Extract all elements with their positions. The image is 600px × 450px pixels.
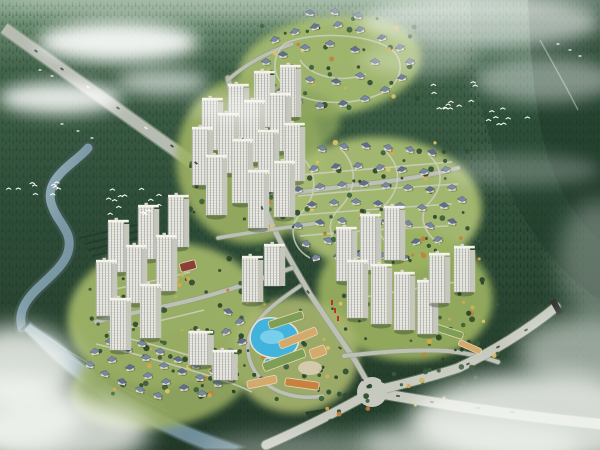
tower-penthouse — [115, 218, 118, 220]
tower-face — [274, 163, 290, 217]
autumn-tree — [492, 353, 497, 358]
tower-roof — [274, 161, 295, 164]
tower-side — [387, 268, 393, 324]
tower-building — [347, 258, 368, 323]
tree — [352, 179, 355, 182]
autumn-tree — [470, 305, 474, 309]
tree — [247, 349, 250, 352]
tower-face — [242, 258, 258, 302]
distant-building — [579, 55, 582, 57]
tree — [381, 378, 387, 384]
tower-roof — [360, 214, 381, 217]
tree — [415, 96, 420, 101]
tree — [275, 397, 279, 401]
tower-roof — [96, 260, 117, 263]
tower-building — [242, 254, 263, 307]
red-banner — [334, 308, 336, 313]
tree — [168, 354, 173, 359]
tower-side — [300, 127, 306, 181]
tree — [362, 48, 365, 51]
tower-penthouse — [354, 258, 357, 260]
tower-building — [454, 244, 475, 297]
autumn-tree — [270, 225, 274, 229]
tower-building — [384, 204, 405, 265]
tree — [337, 392, 342, 397]
tower-side — [470, 250, 476, 292]
autumn-tree — [462, 301, 465, 304]
autumn-tree — [177, 283, 182, 288]
autumn-tree — [337, 412, 342, 417]
tower-side — [222, 159, 228, 215]
autumn-tree — [427, 339, 432, 344]
autumn-tree — [263, 303, 265, 305]
tower-penthouse — [436, 251, 439, 253]
tower-penthouse — [271, 242, 274, 244]
tree — [469, 316, 475, 322]
tower-side — [172, 239, 178, 291]
autumn-tree — [181, 329, 184, 332]
tower-building — [264, 242, 285, 291]
tower-face — [156, 237, 172, 291]
autumn-tree — [339, 302, 343, 306]
tower-roof — [156, 235, 177, 238]
tower-roof — [228, 84, 249, 87]
tree — [329, 215, 333, 219]
tower-face — [429, 255, 445, 303]
tree — [326, 66, 330, 70]
tree — [438, 316, 442, 320]
distant-building — [557, 43, 560, 45]
tower-side — [264, 174, 270, 228]
tree — [442, 150, 446, 154]
tower-building — [429, 251, 450, 308]
tree — [342, 393, 348, 399]
tree — [367, 80, 372, 85]
tree — [232, 390, 236, 394]
autumn-tree — [323, 232, 327, 236]
tower-roof — [394, 272, 415, 275]
masterplan-svg — [0, 0, 600, 450]
cloud — [38, 22, 198, 62]
tree — [428, 166, 434, 172]
tower-penthouse — [255, 168, 258, 170]
tree — [284, 32, 287, 35]
autumn-tree — [422, 353, 427, 358]
tower-penthouse — [175, 193, 178, 195]
tower-penthouse — [401, 270, 404, 272]
tree — [105, 334, 109, 338]
distant-building — [39, 69, 42, 71]
tree — [381, 174, 386, 179]
tower-roof — [213, 350, 238, 353]
autumn-tree — [174, 295, 177, 298]
tower-roof — [232, 139, 253, 142]
distant-building — [91, 137, 94, 139]
tree — [418, 82, 423, 87]
autumn-tree — [344, 87, 347, 90]
tree — [363, 393, 369, 399]
autumn-tree — [186, 277, 190, 281]
cloud — [116, 69, 208, 95]
tree — [226, 256, 232, 262]
autumn-tree — [421, 252, 424, 255]
autumn-tree — [407, 384, 411, 388]
tree — [201, 384, 204, 387]
tree — [400, 383, 403, 386]
tower-side — [184, 199, 190, 247]
tower-side — [296, 69, 302, 117]
tower-side — [410, 276, 416, 330]
tower-roof — [110, 298, 131, 301]
tree — [460, 347, 464, 351]
tree — [461, 323, 466, 328]
tree — [319, 396, 324, 401]
tree — [343, 369, 349, 375]
tower-penthouse — [117, 296, 120, 298]
tree — [465, 149, 470, 154]
tree — [344, 327, 348, 331]
tree — [410, 339, 413, 342]
autumn-tree — [296, 43, 300, 47]
tower-roof — [258, 130, 279, 133]
distant-building — [569, 49, 572, 51]
tree — [218, 269, 221, 272]
tree — [204, 290, 208, 294]
tree — [193, 211, 196, 214]
tower-roof — [254, 71, 275, 74]
tower-penthouse — [291, 121, 294, 123]
tower-roof — [126, 245, 147, 248]
distant-building — [77, 130, 80, 132]
tree — [462, 211, 465, 214]
tower-roof — [192, 127, 213, 130]
tower-side — [290, 165, 296, 217]
tower-face — [206, 157, 222, 215]
autumn-tree — [386, 167, 391, 172]
tower-penthouse — [239, 137, 242, 139]
tower-roof — [189, 331, 214, 334]
cloud — [190, 96, 270, 120]
tree — [401, 177, 404, 180]
tree — [199, 199, 205, 205]
tower-face — [110, 300, 126, 350]
autumn-tree — [322, 338, 325, 341]
tree — [239, 333, 245, 339]
tower-face — [454, 248, 470, 292]
tower-side — [280, 248, 286, 286]
tree — [122, 277, 125, 280]
tree — [454, 349, 457, 352]
tower-roof — [264, 244, 285, 247]
tower-roof — [429, 253, 450, 256]
autumn-tree — [325, 374, 329, 378]
tree — [481, 281, 484, 284]
plaza — [298, 361, 322, 375]
tower-roof — [454, 246, 475, 249]
tree — [366, 399, 370, 403]
tree — [306, 251, 310, 255]
tower-face — [394, 274, 410, 330]
tree — [326, 389, 331, 394]
distant-building — [61, 123, 64, 125]
autumn-tree — [419, 378, 425, 384]
tower-face — [232, 141, 248, 203]
tower-face — [347, 262, 363, 318]
tower-side — [156, 288, 162, 338]
tree — [162, 341, 167, 346]
tower-roof — [280, 65, 301, 68]
tower-penthouse — [199, 125, 202, 127]
tree — [132, 328, 135, 331]
tree — [194, 387, 199, 392]
tower-penthouse — [367, 212, 370, 214]
tree — [348, 410, 351, 413]
autumn-tree — [478, 257, 481, 260]
tower-roof — [206, 155, 227, 158]
autumn-tree — [165, 389, 170, 394]
tree — [252, 373, 256, 377]
tree — [459, 364, 465, 370]
tower-building — [274, 159, 295, 222]
tree — [111, 392, 115, 396]
tower-penthouse — [197, 329, 200, 331]
tower-roof — [138, 205, 159, 208]
tower-side — [231, 354, 238, 380]
tree — [90, 316, 94, 320]
tree — [255, 246, 261, 252]
tower-penthouse — [133, 243, 136, 245]
tower-penthouse — [163, 233, 166, 235]
tree — [416, 148, 422, 154]
tree — [243, 364, 246, 367]
autumn-tree — [459, 236, 463, 240]
tower-roof — [371, 264, 392, 267]
tower-penthouse — [378, 262, 381, 264]
tree — [160, 307, 166, 313]
tower-penthouse — [261, 69, 264, 71]
tower-building — [394, 270, 415, 335]
tower-roof — [168, 195, 189, 198]
red-banner — [331, 300, 333, 305]
tower-roof — [347, 260, 368, 263]
tower-roof — [248, 170, 269, 173]
tree — [331, 307, 334, 310]
tower-penthouse — [147, 282, 150, 284]
tree — [379, 208, 383, 212]
tower-penthouse — [145, 203, 148, 205]
tower-face — [248, 172, 264, 228]
tree — [243, 217, 246, 220]
autumn-tree — [113, 388, 116, 391]
tree — [478, 240, 481, 243]
autumn-tree — [448, 318, 451, 321]
tree — [182, 356, 188, 362]
tower-roof — [242, 256, 263, 259]
tree — [444, 177, 447, 180]
tower-building — [206, 153, 227, 220]
tree — [447, 358, 450, 361]
tower-face — [126, 247, 142, 303]
autumn-tree — [482, 320, 485, 323]
red-banner — [337, 316, 339, 321]
tower-face — [140, 286, 156, 338]
tower-penthouse — [287, 63, 290, 65]
tower-roof — [108, 220, 129, 223]
tree — [88, 288, 91, 291]
tower-penthouse — [265, 128, 268, 130]
tower-face — [384, 208, 400, 260]
tree — [423, 369, 428, 374]
autumn-tree — [366, 406, 371, 411]
tree — [360, 209, 364, 213]
tower-penthouse — [235, 82, 238, 84]
tree — [189, 279, 195, 285]
autumn-tree — [149, 348, 152, 351]
tower-face — [192, 129, 208, 185]
tower-penthouse — [424, 278, 427, 280]
tower-side — [126, 302, 132, 350]
tower-penthouse — [213, 153, 216, 155]
tower-face — [189, 333, 208, 365]
tree — [347, 193, 352, 198]
tree — [334, 375, 338, 379]
tower-penthouse — [391, 204, 394, 206]
tower-roof — [140, 284, 161, 287]
tower-building — [371, 262, 392, 329]
autumn-tree — [411, 254, 414, 257]
tower-penthouse — [103, 258, 106, 260]
autumn-tree — [226, 288, 229, 291]
tree — [443, 159, 447, 163]
tower-roof — [284, 123, 305, 126]
tree — [389, 81, 393, 85]
tower-side — [258, 260, 264, 302]
tree — [403, 159, 406, 162]
tower-roof — [384, 206, 405, 209]
autumn-tree — [433, 141, 436, 144]
autumn-tree — [207, 393, 211, 397]
tower-roof — [336, 227, 357, 230]
tree — [172, 369, 175, 372]
tree — [158, 355, 162, 359]
tower-penthouse — [461, 244, 464, 246]
tree — [466, 311, 471, 316]
tower-building — [248, 168, 269, 233]
tree — [218, 303, 223, 308]
tree — [133, 322, 138, 327]
tree — [439, 215, 445, 221]
tree — [466, 140, 471, 145]
tree — [265, 297, 271, 303]
tree — [317, 373, 321, 377]
tree — [381, 150, 386, 155]
tree — [442, 358, 445, 361]
tower-penthouse — [221, 348, 224, 350]
tower-building — [110, 296, 131, 355]
tree — [306, 30, 309, 33]
tree — [342, 294, 347, 299]
tower-penthouse — [277, 91, 280, 93]
autumn-tree — [273, 51, 278, 56]
tower-side — [400, 210, 406, 260]
tower-penthouse — [281, 159, 284, 161]
tower-face — [371, 266, 387, 324]
aerial-rendering-canvas — [0, 0, 600, 450]
autumn-tree — [329, 57, 334, 62]
autumn-tree — [326, 346, 330, 350]
tower-side — [363, 264, 369, 318]
autumn-tree — [180, 273, 184, 277]
tree — [437, 368, 441, 372]
tree — [364, 337, 367, 340]
tower-penthouse — [343, 225, 346, 227]
tree — [347, 27, 353, 33]
tower-face — [264, 246, 280, 286]
tree — [328, 72, 333, 77]
tree — [143, 381, 149, 387]
autumn-tree — [391, 94, 396, 99]
tree — [368, 384, 373, 389]
tree — [465, 226, 469, 230]
autumn-tree — [147, 364, 152, 369]
tree — [469, 365, 475, 371]
tree — [309, 65, 314, 70]
autumn-tree — [316, 161, 319, 164]
tree — [303, 91, 307, 95]
tower-building — [140, 282, 161, 343]
tower-face — [213, 352, 232, 380]
tree — [392, 372, 396, 376]
tree — [260, 24, 264, 28]
tower-roof — [270, 93, 291, 96]
tree — [307, 175, 312, 180]
autumn-tree — [333, 140, 338, 145]
tree — [433, 215, 437, 219]
cloud — [440, 154, 600, 186]
tree — [427, 244, 431, 248]
tree — [496, 303, 499, 306]
autumn-tree — [423, 176, 428, 181]
tower-face — [96, 262, 112, 316]
distant-building — [51, 75, 54, 77]
cloud — [0, 82, 122, 114]
tree — [357, 65, 360, 68]
tower-side — [445, 257, 451, 303]
tree — [428, 368, 432, 372]
autumn-tree — [421, 236, 426, 241]
tower-penthouse — [249, 254, 252, 256]
autumn-tree — [325, 407, 329, 411]
tree — [96, 322, 100, 326]
tree — [302, 342, 307, 347]
cloud — [360, 44, 480, 76]
